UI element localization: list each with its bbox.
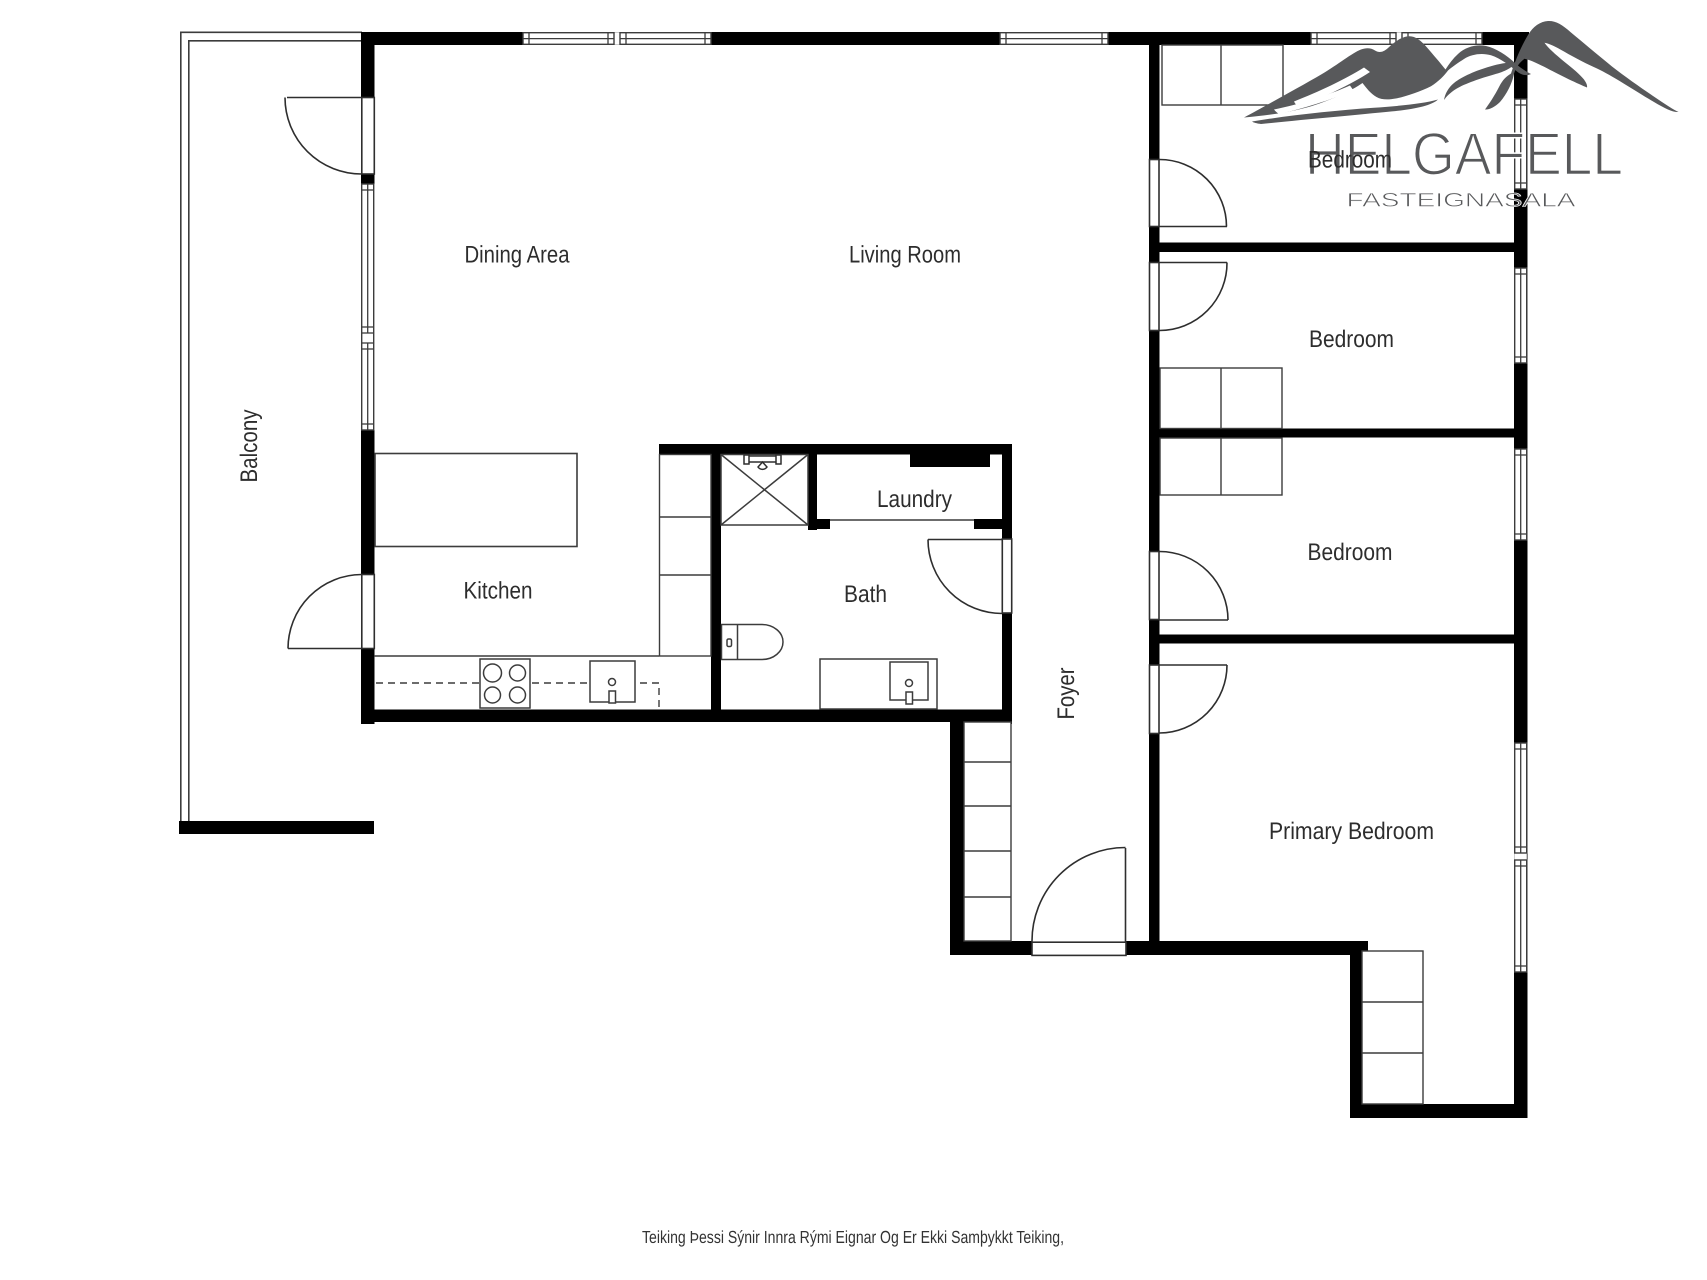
svg-text:Bath: Bath	[844, 581, 887, 608]
svg-text:Laundry: Laundry	[877, 486, 952, 513]
svg-text:FASTEIGNASALA: FASTEIGNASALA	[1347, 190, 1576, 212]
svg-text:Balcony: Balcony	[236, 410, 263, 483]
svg-text:Foyer: Foyer	[1053, 668, 1080, 720]
svg-text:Bedroom: Bedroom	[1308, 147, 1392, 174]
svg-text:Primary Bedroom: Primary Bedroom	[1269, 818, 1434, 845]
svg-text:Kitchen: Kitchen	[464, 578, 533, 605]
svg-text:Living Room: Living Room	[849, 242, 961, 269]
svg-text:Bedroom: Bedroom	[1309, 326, 1394, 353]
svg-text:Dining Area: Dining Area	[465, 242, 571, 269]
svg-text:Bedroom: Bedroom	[1308, 539, 1393, 566]
svg-text:Teiking Þessi Sýnir Innra Rými: Teiking Þessi Sýnir Innra Rými Eignar Og…	[642, 1227, 1064, 1247]
